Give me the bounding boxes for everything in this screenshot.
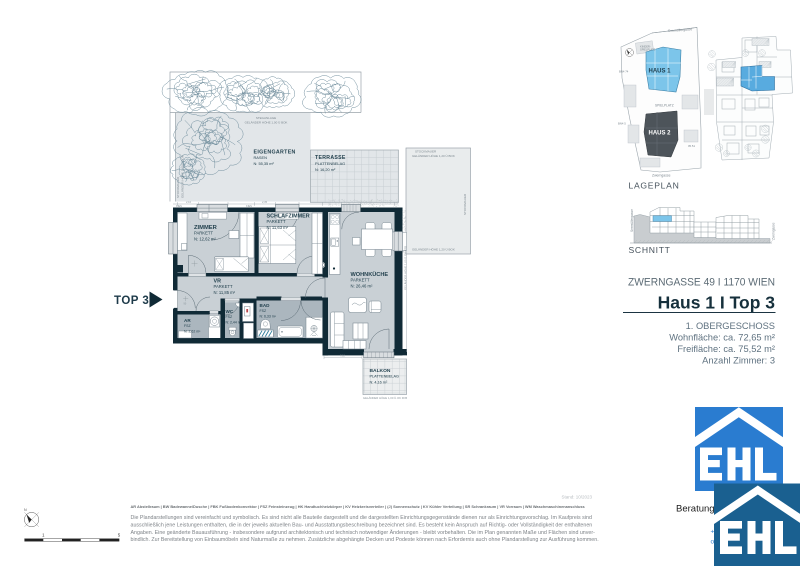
svg-text:PLATTENBELAG: PLATTENBELAG [370, 375, 400, 379]
svg-text:N: 55,35 m²: N: 55,35 m² [254, 161, 275, 166]
svg-text:N: 11,63 m²: N: 11,63 m² [267, 225, 289, 230]
svg-text:WC: WC [226, 309, 234, 314]
svg-text:STOCKMAUER: STOCKMAUER [415, 150, 437, 154]
svg-text:Seemüllergasse: Seemüllergasse [630, 209, 634, 232]
svg-text:GELÄNDER HÖHE 1,00 Ü BOK: GELÄNDER HÖHE 1,00 Ü BOK [245, 121, 288, 125]
svg-text:PARKETT: PARKETT [267, 219, 286, 224]
svg-text:GELÄNDER HÖHE 1,20 Ü BOK: GELÄNDER HÖHE 1,20 Ü BOK [412, 154, 455, 158]
svg-text:Haus 1 I Top 3: Haus 1 I Top 3 [658, 293, 776, 313]
svg-text:AR: AR [184, 318, 191, 323]
svg-text:2,10: 2,10 [186, 200, 192, 204]
svg-text:N: 16,20 m²: N: 16,20 m² [315, 167, 336, 172]
svg-text:2,35: 2,35 [262, 200, 268, 204]
svg-text:BN4 5: BN4 5 [618, 122, 626, 126]
svg-text:N: 4,16 m²: N: 4,16 m² [370, 381, 388, 385]
svg-text:STEGANLAGE: STEGANLAGE [256, 116, 276, 120]
svg-text:PARKETT: PARKETT [214, 284, 233, 289]
svg-text:N: 2,44 m²: N: 2,44 m² [226, 320, 243, 324]
svg-text:05.51: 05.51 [688, 144, 695, 148]
svg-text:N: 2,62 m²: N: 2,62 m² [184, 329, 201, 333]
svg-text:GELÄNDER HÖHE 1,00 Ü.OK FFB: GELÄNDER HÖHE 1,00 Ü.OK FFB [404, 246, 408, 290]
svg-text:BAD: BAD [260, 303, 271, 308]
svg-text:HAUS 2: HAUS 2 [649, 131, 672, 137]
svg-text:FSZ: FSZ [184, 324, 191, 328]
svg-text:STOCKMAUER: STOCKMAUER [463, 193, 467, 215]
svg-text:ZWERNGASSE 49 I 1170 WIEN: ZWERNGASSE 49 I 1170 WIEN [628, 277, 775, 289]
svg-text:Zwerngasse: Zwerngasse [772, 222, 776, 240]
svg-text:PLATTENBELAG: PLATTENBELAG [315, 161, 345, 166]
svg-text:N: 6,33 m²: N: 6,33 m² [260, 314, 277, 318]
svg-text:SPIELPLATZ: SPIELPLATZ [640, 48, 656, 52]
svg-text:LAGEPLAN: LAGEPLAN [629, 181, 680, 191]
svg-text:HAUS 1: HAUS 1 [649, 69, 672, 75]
svg-text:FSZ: FSZ [260, 309, 267, 313]
svg-text:Stand: 10/2023: Stand: 10/2023 [561, 495, 592, 500]
svg-text:KIES: KIES [246, 204, 252, 208]
svg-text:BN4 74: BN4 74 [619, 70, 629, 74]
svg-text:bindlich. Zur Bereitstellung v: bindlich. Zur Bereitstellung von Einbaum… [131, 537, 599, 543]
svg-text:Angaben. Eine geänderte Bauaus: Angaben. Eine geänderte Bauausführung - … [131, 529, 596, 536]
svg-text:N: 12,62 m²: N: 12,62 m² [194, 236, 216, 241]
svg-text:Wohnfläche: ca. 72,65 m²: Wohnfläche: ca. 72,65 m² [669, 333, 775, 343]
svg-text:PARKETT: PARKETT [194, 231, 213, 236]
svg-text:TOP 3: TOP 3 [114, 295, 149, 307]
svg-text:SPIELPLATZ: SPIELPLATZ [655, 104, 674, 108]
svg-text:N: 26,46 m²: N: 26,46 m² [351, 283, 373, 288]
svg-text:KIES: KIES [176, 204, 182, 208]
svg-text:SCHNITT: SCHNITT [629, 245, 671, 255]
svg-text:PARKETT: PARKETT [351, 278, 370, 283]
svg-text:Die Plandarstellungen sind ver: Die Plandarstellungen sind vereinfacht u… [131, 515, 592, 521]
svg-text:N: 11,85 m²: N: 11,85 m² [214, 290, 236, 295]
svg-text:BALKON: BALKON [370, 368, 391, 374]
svg-text:Anzahl Zimmer: 3: Anzahl Zimmer: 3 [702, 356, 775, 366]
svg-text:7,18: 7,18 [340, 355, 345, 358]
svg-text:GELÄNDER HÖHE 1,00 Ü.OK FFB: GELÄNDER HÖHE 1,00 Ü.OK FFB [363, 396, 407, 400]
svg-text:FSZ: FSZ [226, 315, 233, 319]
svg-text:ausschließlich jene Leistungen: ausschließlich jene Leistungen enthalten… [131, 522, 593, 528]
svg-text:N: N [24, 508, 27, 512]
svg-text:AR Abstellraum | BW Badewann: AR Abstellraum | BW Badewanne/Dusche | F… [131, 504, 585, 509]
svg-text:Freifläche: ca. 75,52 m²: Freifläche: ca. 75,52 m² [677, 344, 775, 354]
svg-text:RASEN: RASEN [254, 155, 268, 160]
svg-text:GELÄNDER HÖHE 1,20 Ü BOK: GELÄNDER HÖHE 1,20 Ü BOK [412, 248, 455, 252]
svg-text:Zwerngasse: Zwerngasse [652, 174, 671, 178]
svg-text:1. OBERGESCHOSS: 1. OBERGESCHOSS [686, 321, 775, 331]
